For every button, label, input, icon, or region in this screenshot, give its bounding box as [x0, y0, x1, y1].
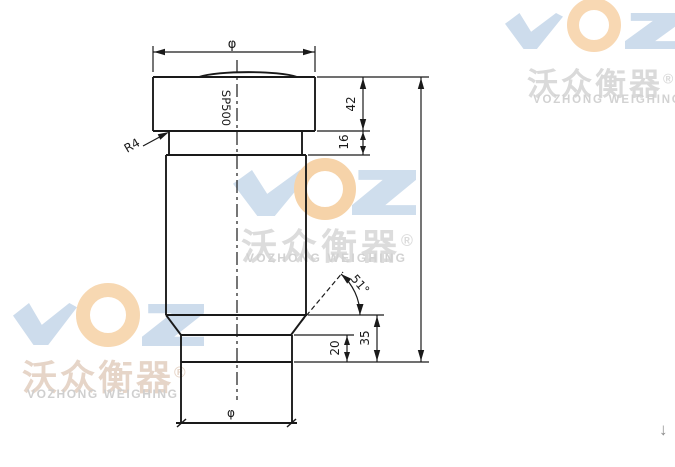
dim-fillet-radius-label: R4 [122, 135, 143, 155]
part-outline [153, 72, 315, 423]
scroll-down-arrow[interactable]: ↓ [659, 421, 668, 438]
dim-collar-height-label: 16 [337, 134, 351, 149]
dim-base-total-height-label: 35 [358, 330, 372, 345]
model-label: SP500 [219, 90, 233, 126]
product-drawing-image: 沃众衡器® VOZHONG WEIGHING 沃众衡器® VOZHONG WEI… [0, 0, 675, 467]
dim-base-step-height-label: 20 [328, 340, 342, 355]
dim-bottom-diameter-label: φ [227, 406, 235, 420]
dimension-lines [143, 46, 429, 427]
dim-cap-height-label: 42 [344, 96, 358, 111]
dim-top-diameter-label: φ [228, 37, 237, 52]
technical-drawing: φ SP500 42 16 51° 20 35 R4 φ [0, 0, 675, 467]
dim-cone-angle-label: 51° [348, 272, 372, 297]
